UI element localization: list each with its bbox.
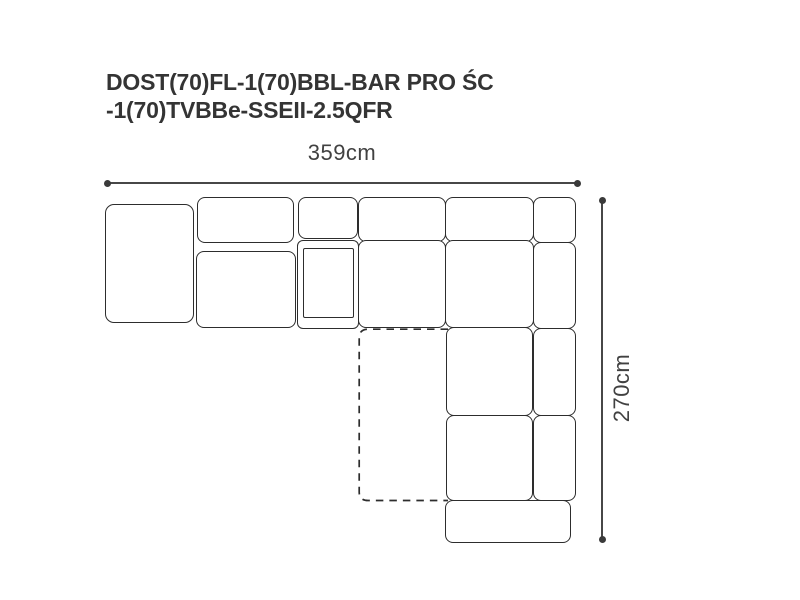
foldout-footprint-dashed-outline — [358, 328, 449, 502]
height-dimension-label: 270cm — [609, 328, 635, 448]
product-title: DOST(70)FL-1(70)BBL-BAR PRO ŚC -1(70)TVB… — [106, 68, 494, 124]
module-right-backrest-1-outline — [533, 242, 576, 329]
module-seat2-cushion-outline — [196, 251, 296, 328]
module-right-backrest-3-outline — [533, 415, 576, 501]
width-dimension-endpoint-left — [104, 180, 111, 187]
height-dimension-line — [601, 200, 603, 539]
width-dimension-label: 359cm — [107, 140, 577, 166]
module-corner-backrest-top-left-outline — [445, 197, 534, 242]
width-dimension-endpoint-right — [574, 180, 581, 187]
module-armrest-bottom-outline — [445, 500, 571, 543]
product-title-line2: -1(70)TVBBe-SSEII-2.5QFR — [106, 96, 494, 124]
sofa-plan-diagram: DOST(70)FL-1(70)BBL-BAR PRO ŚC -1(70)TVB… — [0, 0, 800, 600]
module-seat5-cushion-outline — [446, 415, 533, 501]
module-corner-seat-outline — [445, 240, 534, 328]
width-dimension-line — [107, 182, 577, 184]
module-bar-backrest-outline — [298, 197, 358, 239]
module-seat3-cushion-outline — [358, 240, 446, 328]
product-title-line1: DOST(70)FL-1(70)BBL-BAR PRO ŚC — [106, 68, 494, 96]
module-seat3-backrest-outline — [358, 197, 446, 242]
module-seat2-backrest-outline — [197, 197, 294, 243]
module-seat4-cushion-outline — [446, 327, 533, 416]
module-corner-backrest-top-right-outline — [533, 197, 576, 243]
height-dimension-endpoint-top — [599, 197, 606, 204]
module-right-backrest-2-outline — [533, 328, 576, 416]
bar-insert-outline — [303, 248, 354, 318]
height-dimension-endpoint-bottom — [599, 536, 606, 543]
module-armless-end-outline — [105, 204, 194, 323]
